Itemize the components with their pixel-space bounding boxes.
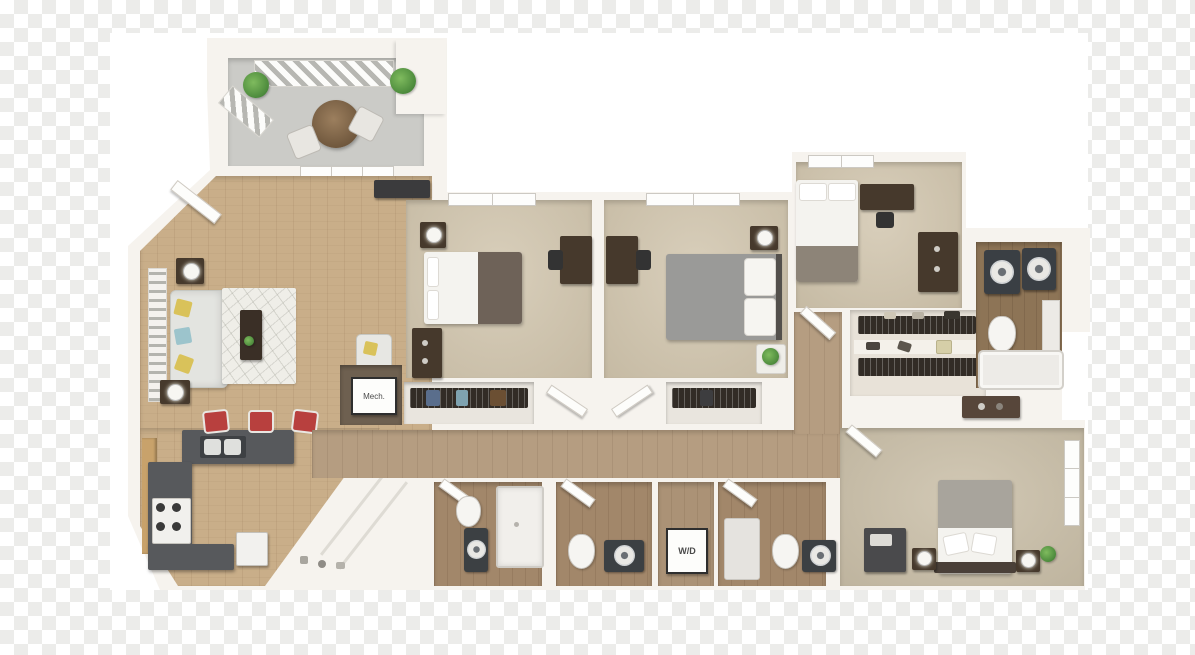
shelf-knob <box>978 403 985 410</box>
table-lamp <box>1021 553 1036 568</box>
bed-3-pillow <box>799 183 827 201</box>
bed-1-pillow <box>427 290 439 320</box>
bed-3-pillow <box>828 183 856 201</box>
bedroom-2-window <box>646 193 740 206</box>
sink <box>467 540 486 559</box>
bed-2-headboard <box>776 254 782 340</box>
hanging-clothes-lightblue <box>456 390 468 406</box>
sofa-pillow-blue <box>174 327 193 346</box>
shower-drain <box>514 522 519 527</box>
refrigerator <box>236 532 268 566</box>
bar-stool <box>248 410 274 433</box>
desk-drawer <box>870 534 892 546</box>
desk <box>860 184 914 210</box>
sink-basin <box>224 439 241 455</box>
sink <box>990 260 1014 284</box>
bed-4-headboard <box>934 562 1016 573</box>
dresser-knob <box>934 246 940 252</box>
sink <box>614 545 635 566</box>
table-lamp <box>183 263 200 280</box>
bed-2-pillow <box>744 258 776 296</box>
closet-shelf-item <box>912 312 924 319</box>
shelf-knob <box>996 403 1003 410</box>
coffee-table <box>240 310 262 360</box>
table-lamp <box>167 384 184 401</box>
closet-shelf-item <box>884 312 896 319</box>
bedroom-1-window <box>448 193 536 206</box>
bed-2-pillow <box>744 298 776 336</box>
bed-1-pillow <box>427 257 439 287</box>
stove-burner <box>172 522 181 531</box>
desk <box>560 236 592 284</box>
closet-2-clothes <box>672 388 756 408</box>
potted-plant <box>390 68 416 94</box>
pantry-item <box>300 556 308 564</box>
pantry-item <box>318 560 326 568</box>
desk-chair <box>876 212 894 228</box>
hanging-clothes-dark <box>700 390 713 406</box>
hanging-clothes-brown <box>490 390 506 406</box>
bedroom-4-window <box>1064 440 1080 526</box>
closet-shelf-item <box>944 311 960 319</box>
hallway-floor <box>312 430 842 478</box>
sink <box>810 545 831 566</box>
kitchen-counter-bottom <box>148 544 234 570</box>
bathtub <box>978 350 1064 390</box>
closet-shelf-item <box>866 342 880 350</box>
dresser-knob <box>422 358 428 364</box>
dresser-knob <box>934 266 940 272</box>
stove-burner <box>156 522 165 531</box>
tv-console <box>374 180 430 198</box>
mechanical-unit: Mech. <box>351 377 397 415</box>
sink <box>1027 257 1051 281</box>
potted-plant <box>762 348 779 365</box>
pantry-item <box>336 562 345 569</box>
walk-in-clothes-bottom <box>858 358 978 376</box>
stove-burner <box>156 503 165 512</box>
armchair-pillow <box>363 341 378 356</box>
dresser-knob <box>422 340 428 346</box>
desk <box>606 236 638 284</box>
table-lamp <box>757 230 773 246</box>
wd-label: W/D <box>678 546 696 556</box>
hanging-clothes-blue <box>426 390 440 406</box>
closet-shelf-item <box>936 340 952 354</box>
toilet <box>568 534 595 569</box>
sink-basin <box>204 439 221 455</box>
bedroom-3-window <box>808 155 874 168</box>
floor-plan-image: Mech. <box>0 0 1195 655</box>
stove-burner <box>172 503 181 512</box>
desk-chair <box>636 250 651 270</box>
balcony-railing <box>254 60 394 87</box>
coffee-table-plant <box>244 336 254 346</box>
toilet <box>772 534 799 569</box>
potted-plant <box>243 72 269 98</box>
shower <box>496 486 544 568</box>
table-lamp <box>917 551 932 566</box>
toilet <box>988 316 1016 352</box>
bed-3-blanket <box>796 246 858 282</box>
dresser <box>412 328 442 378</box>
potted-plant <box>1040 546 1056 562</box>
wall-shelf <box>962 396 1020 418</box>
bed-4-pillow <box>970 532 997 556</box>
washer-dryer: W/D <box>666 528 708 574</box>
shower <box>724 518 760 580</box>
dresser <box>918 232 958 292</box>
desk-chair <box>548 250 563 270</box>
bar-stool <box>202 409 230 435</box>
bed-1-blanket <box>478 252 522 324</box>
toilet <box>456 496 481 527</box>
mech-label: Mech. <box>363 392 385 401</box>
table-lamp <box>426 227 442 243</box>
